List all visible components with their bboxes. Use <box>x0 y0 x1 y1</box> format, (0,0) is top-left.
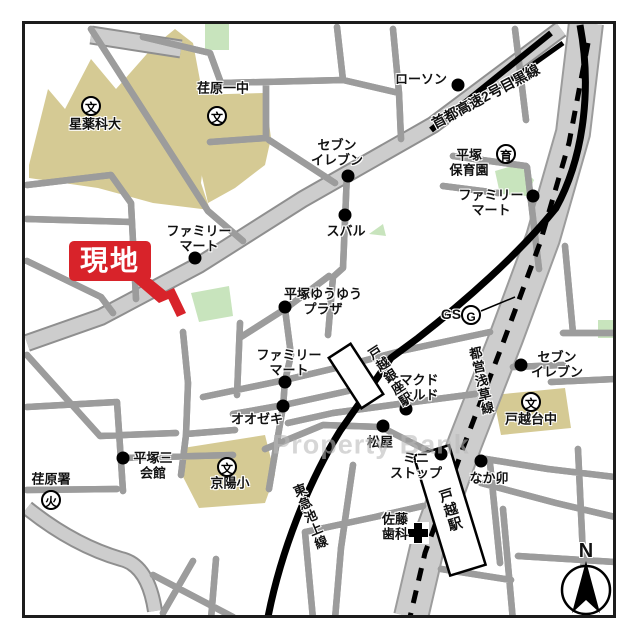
watermark-text: Property Bank <box>272 430 470 461</box>
map-screenshot: 星薬科大 文 荏原一中 文 ローソン 首都高速2号目黒線 平塚 保育園 育 ファ… <box>0 0 640 640</box>
label-seven-eleven-east: セブン イレブン <box>531 350 583 379</box>
label-seven-eleven-north: セブン イレブン <box>311 138 363 167</box>
label-hiratsuka-hoikuen: 平塚 保育園 <box>449 148 488 177</box>
poi-dot-hiratsuka3 <box>117 452 130 465</box>
map-world: 星薬科大 文 荏原一中 文 ローソン 首都高速2号目黒線 平塚 保育園 育 ファ… <box>22 21 616 618</box>
label-kyoyo-es: 京陽小 <box>210 477 249 492</box>
label-nakau: なか卯 <box>469 472 508 487</box>
park-patch <box>191 286 233 322</box>
label-togoshidai-jhs: 戸越台中 <box>505 413 557 428</box>
park-patch <box>205 24 229 50</box>
label-hiratsuka3-hall: 平塚三 会館 <box>133 451 172 480</box>
compass-north-label: N <box>579 540 593 562</box>
compass-rose <box>562 561 610 614</box>
school-symbol-icon: 文 <box>217 457 237 477</box>
park-patch <box>369 224 386 236</box>
map-frame: 星薬科大 文 荏原一中 文 ローソン 首都高速2号目黒線 平塚 保育園 育 ファ… <box>22 21 616 618</box>
fire-station-symbol-icon: 火 <box>41 490 61 510</box>
label-ebara-jhs: 荏原一中 <box>197 82 249 97</box>
poi-dot-seven-east <box>515 359 528 372</box>
school-symbol-icon: 文 <box>521 392 541 412</box>
school-symbol-icon: 文 <box>81 96 101 116</box>
poi-dot-famima-ne <box>527 190 540 203</box>
label-gas-station: GS <box>441 307 461 323</box>
nursery-symbol-icon: 育 <box>496 144 516 164</box>
school-symbol-icon: 文 <box>207 106 227 126</box>
poi-dot-subaru <box>339 209 352 222</box>
poi-dot-ozeki <box>277 400 290 413</box>
poi-dot-seven-north <box>342 170 355 183</box>
label-sato-dental: 佐藤 歯科 <box>382 512 408 541</box>
label-hoshi-university: 星薬科大 <box>69 118 121 133</box>
label-ozeki: オオゼキ <box>231 413 283 428</box>
site-location-line <box>165 288 186 317</box>
ebara-jhs-area <box>191 93 271 203</box>
label-familymart-ne: ファミリー マート <box>458 188 523 217</box>
dental-cross-icon <box>407 522 429 544</box>
label-hiratsuka-plaza: 平塚ゆうゆう プラザ <box>284 287 362 316</box>
label-ebara-fire-station: 荏原署 <box>31 473 70 488</box>
poi-dot-lawson <box>452 79 465 92</box>
gas-station-symbol-icon: G <box>461 305 481 325</box>
label-familymart-nw: ファミリー マート <box>166 224 231 253</box>
poi-dot-nakau <box>475 455 488 468</box>
label-subaru: スバル <box>326 225 365 240</box>
label-lawson: ローソン <box>395 73 447 88</box>
label-familymart-south: ファミリー マート <box>256 348 321 377</box>
site-callout-box: 現地 <box>69 241 151 281</box>
